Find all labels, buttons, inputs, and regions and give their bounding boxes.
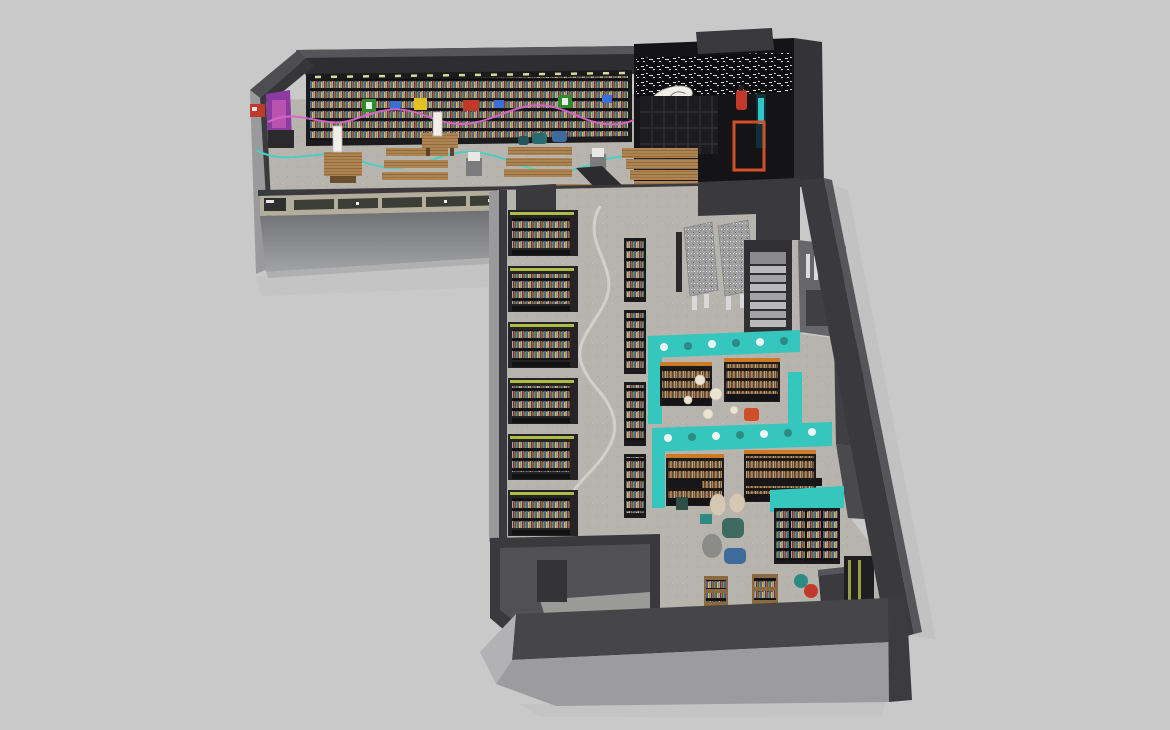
lounge-chair-teal	[532, 133, 547, 144]
cream-pouf	[710, 494, 726, 516]
render-canvas	[0, 0, 1170, 730]
yellow-sign	[414, 98, 427, 110]
granite-table	[684, 222, 718, 296]
stair-step	[750, 311, 786, 318]
bookshelf-island	[724, 358, 780, 402]
book-cart	[704, 576, 728, 610]
right-corner-wall	[794, 38, 824, 190]
teal-pouf	[794, 574, 808, 588]
dark-cube-pouf	[676, 497, 688, 510]
teal-stool	[700, 514, 712, 524]
display-table	[324, 152, 362, 176]
stairwell	[744, 240, 792, 340]
blue-sign	[494, 100, 504, 108]
green-armchair	[722, 518, 744, 538]
book-bench	[382, 172, 448, 180]
standing-banner	[433, 112, 442, 136]
book-bench	[508, 147, 572, 155]
teal-column	[788, 372, 802, 426]
bookshelf-gondola	[508, 434, 578, 480]
red-pouf	[804, 584, 818, 598]
bookshelf-gondola	[508, 266, 578, 312]
red-sign	[463, 100, 479, 111]
book-bench	[504, 169, 572, 177]
corner-desk	[268, 130, 294, 148]
book-bench	[384, 160, 448, 168]
book-bench	[506, 158, 572, 166]
stair-step	[750, 266, 786, 273]
stair-step	[750, 284, 786, 291]
lounge-chair-teal	[518, 136, 529, 145]
bookstore-floorplan-3d-render	[0, 0, 1170, 730]
roof-block	[696, 28, 774, 54]
storage-block	[537, 560, 567, 602]
book-bench	[386, 148, 448, 156]
blue-sign	[390, 101, 400, 109]
orange-armchair	[744, 408, 759, 421]
gray-beanbag	[702, 534, 722, 558]
stair-step	[750, 302, 786, 309]
blue-sign	[602, 95, 612, 103]
stair-step	[750, 320, 786, 327]
blue-beanbag	[724, 548, 746, 564]
bookshelf-gondola	[508, 378, 578, 424]
bookshelf-gondola	[508, 210, 578, 256]
standing-banner	[333, 126, 342, 152]
cream-pouf	[729, 493, 745, 513]
stair-step	[750, 293, 786, 300]
stair-step	[750, 275, 786, 282]
lounge-chair-blue	[552, 131, 567, 142]
wall-bookshelf	[774, 508, 840, 564]
left-wall	[499, 190, 507, 540]
bookshelf-gondola	[508, 322, 578, 368]
red-mannequin	[736, 90, 747, 110]
bookshelf-gondola	[508, 490, 578, 536]
